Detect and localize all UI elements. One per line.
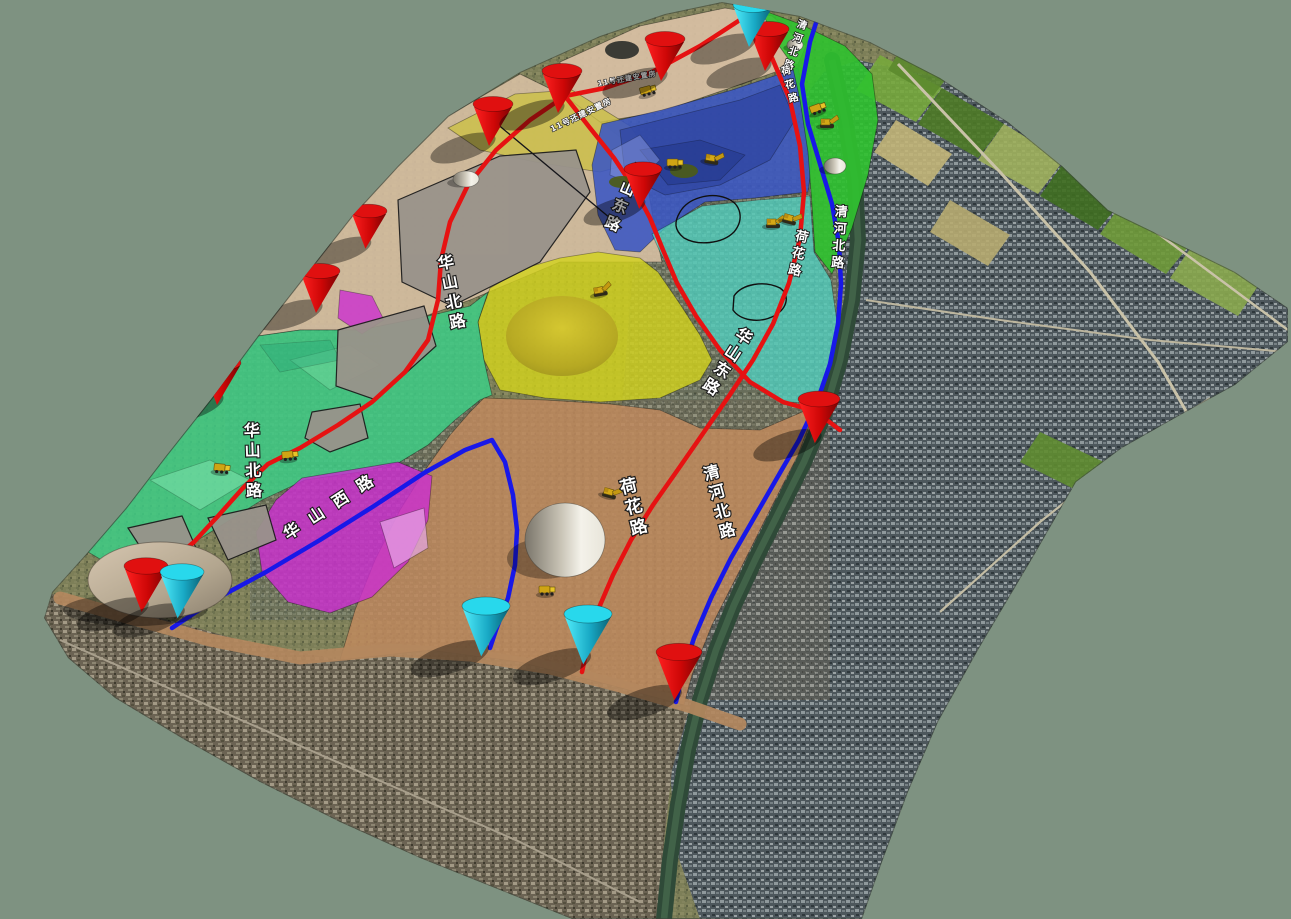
dark-spoil-pile[interactable] (605, 41, 639, 59)
stockpile-mound[interactable] (824, 158, 846, 174)
terrain: 华山北路华山东路清河北路荷花路清河北路荷花路华山东路荷花路清河北路华山北路华山西… (44, 0, 1288, 919)
3d-map-viewport[interactable]: 华山北路华山东路清河北路荷花路清河北路荷花路华山东路荷花路清河北路华山北路华山西… (0, 0, 1291, 919)
tree-clump (281, 234, 301, 246)
terrain-3d-scene[interactable]: 华山北路华山东路清河北路荷花路清河北路荷花路华山东路荷花路清河北路华山北路华山西… (0, 0, 1291, 919)
stockpile-mound[interactable] (453, 171, 479, 187)
yellow-soil-hill (506, 296, 618, 376)
dump-truck-model[interactable] (536, 586, 555, 598)
terrain-clip-group: 华山北路华山东路清河北路荷花路清河北路荷花路华山东路荷花路清河北路华山北路华山西… (44, 0, 1288, 919)
dump-truck-model[interactable] (664, 159, 683, 171)
white-dome-stockpile[interactable] (525, 503, 605, 577)
